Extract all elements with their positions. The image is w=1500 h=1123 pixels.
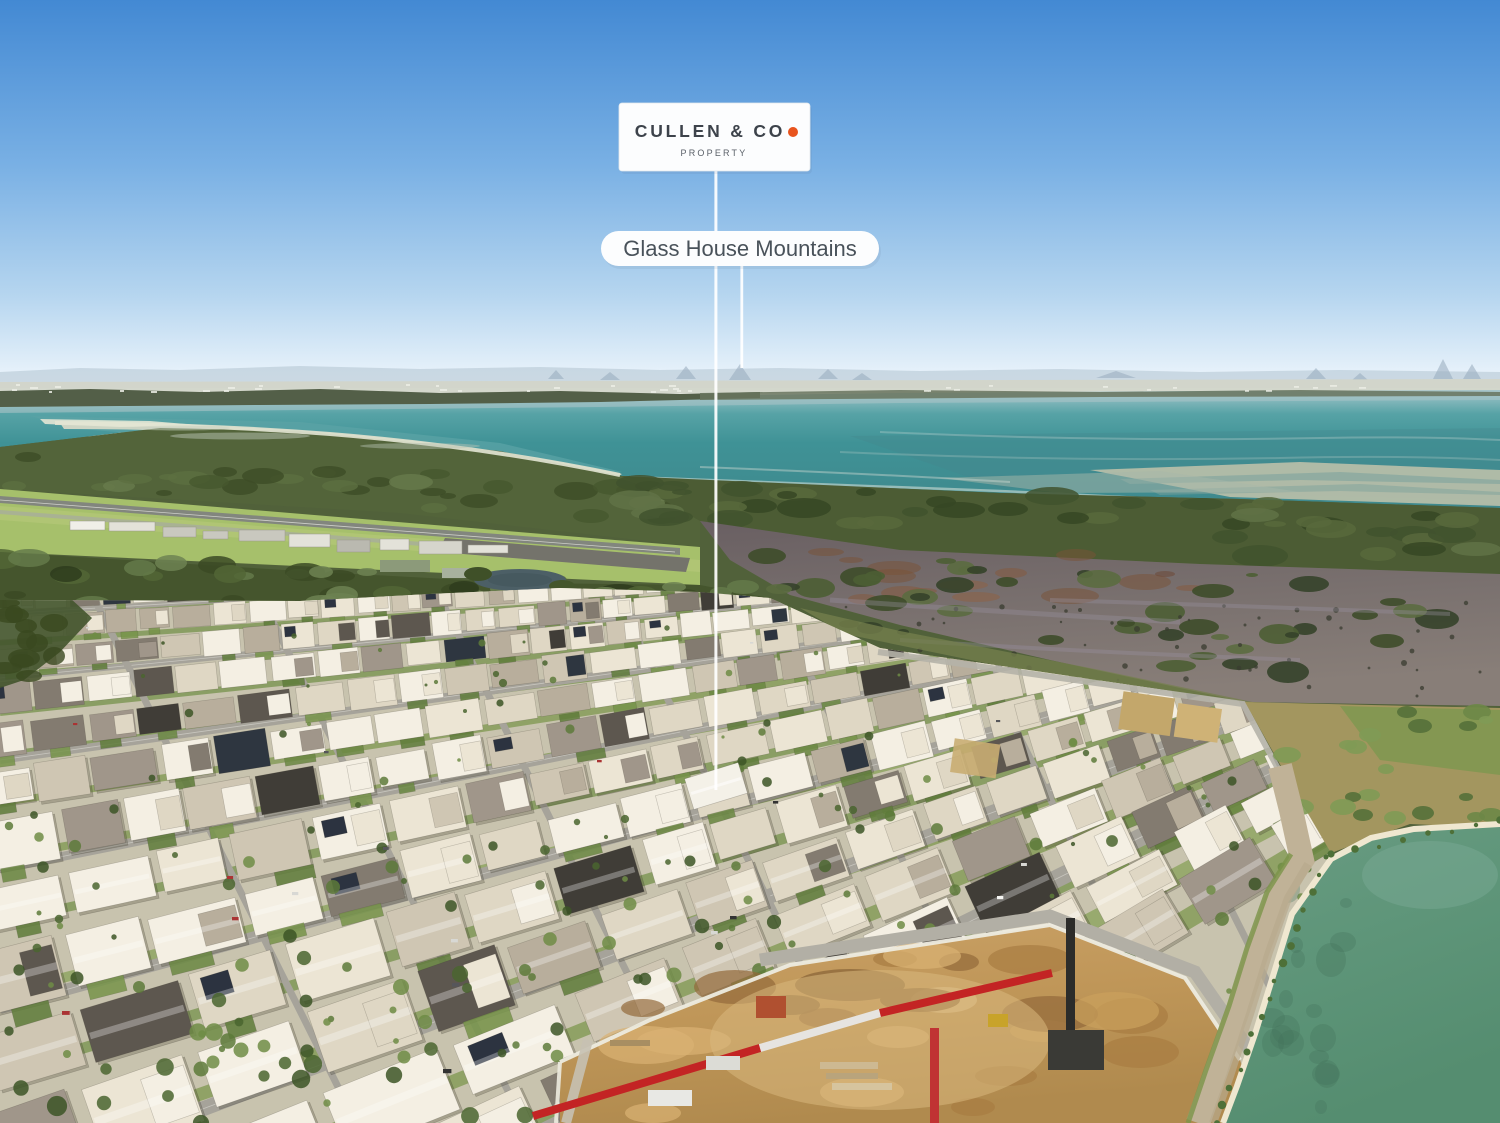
svg-text:CULLEN & CO: CULLEN & CO [635,121,785,141]
svg-text:Glass House Mountains: Glass House Mountains [623,236,857,261]
svg-text:PROPERTY: PROPERTY [681,148,748,158]
